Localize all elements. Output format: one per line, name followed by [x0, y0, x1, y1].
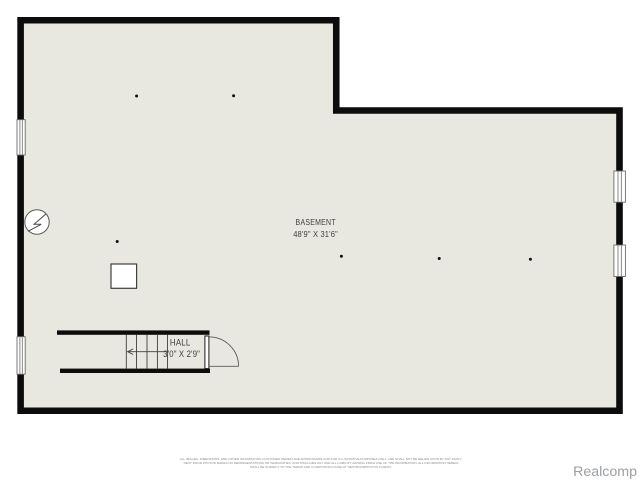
svg-text:SHALL BE SUBJECT TO THE TERMS: SHALL BE SUBJECT TO THE TERMS AND CONDIT… [250, 465, 393, 469]
svg-text:HALL: HALL [170, 337, 191, 348]
svg-text:BASEMENT: BASEMENT [296, 217, 336, 227]
svg-text:48'9" X 31'6": 48'9" X 31'6" [293, 230, 338, 240]
svg-text:3'0" X 2'9": 3'0" X 2'9" [163, 350, 200, 360]
svg-text:Realcomp: Realcomp [573, 464, 637, 480]
